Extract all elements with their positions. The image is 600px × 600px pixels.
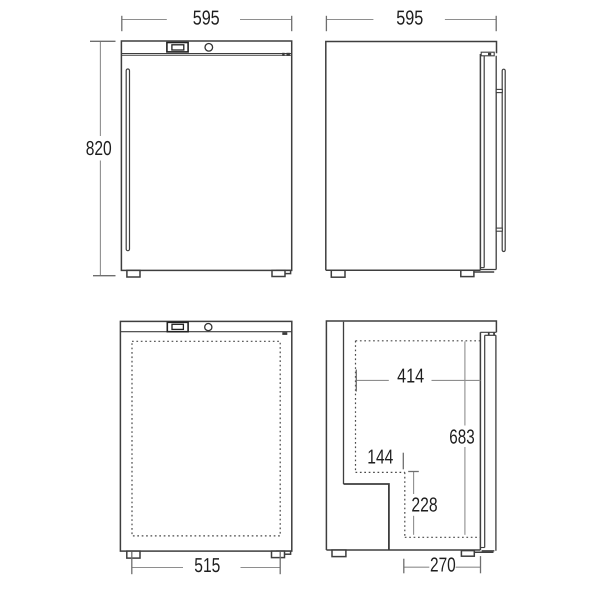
svg-text:820: 820 (86, 138, 112, 160)
svg-text:270: 270 (430, 554, 456, 576)
svg-text:683: 683 (449, 426, 474, 448)
svg-text:414: 414 (397, 366, 424, 388)
svg-text:228: 228 (411, 495, 437, 517)
svg-text:595: 595 (193, 7, 220, 29)
svg-text:144: 144 (367, 447, 393, 469)
svg-text:595: 595 (396, 7, 423, 29)
svg-text:515: 515 (194, 555, 220, 577)
